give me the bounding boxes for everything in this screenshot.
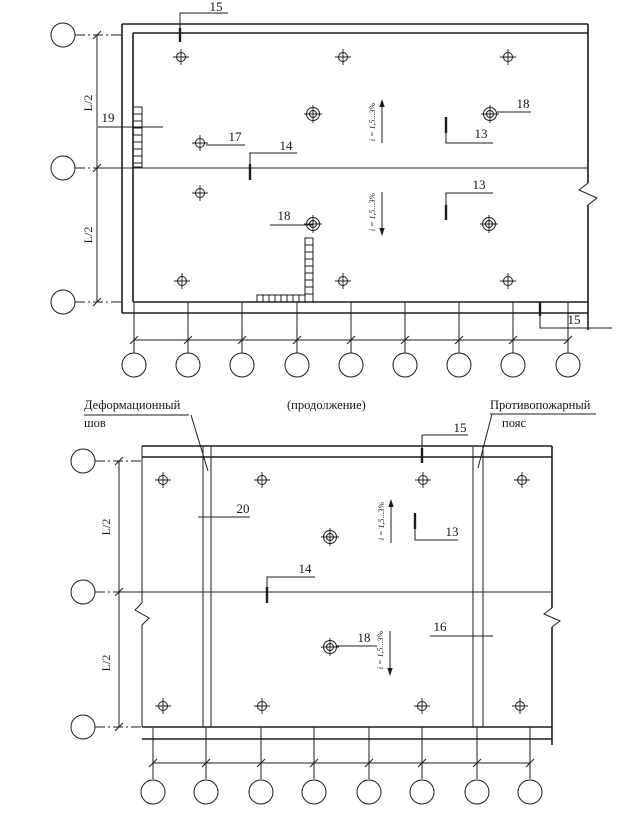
roof-drain-icon [192, 135, 208, 151]
axis-marker-icon [51, 290, 75, 314]
callout-wall-ladder: 19 [94, 111, 122, 125]
roof-drain-icon [500, 49, 516, 65]
callout-ridge-lower: 14 [291, 562, 319, 576]
lower-plan-left-axes [71, 449, 142, 739]
fire-belt-label-line2: пояс [502, 417, 526, 430]
break-mark-icon [544, 608, 560, 627]
slope-arrow-icon [379, 228, 384, 236]
callout-drain-upper: 18 [509, 97, 537, 111]
axis-marker-icon [141, 780, 165, 804]
upper-plan-drains [173, 49, 516, 289]
roof-drain-icon [500, 273, 516, 289]
axis-marker-icon [302, 780, 326, 804]
lower-roof-plan [71, 414, 596, 804]
upper-plan-walls [122, 24, 597, 330]
fire-belt-lines [473, 447, 483, 727]
lower-plan-callout-leaders [84, 414, 596, 646]
roof-drain-icon [173, 49, 189, 65]
lower-plan-walls [135, 446, 560, 745]
axis-marker-icon [556, 353, 580, 377]
gutter-strip-icon [305, 238, 313, 302]
lower-plan-slope-arrows [387, 499, 393, 676]
roof-drain-icon [514, 472, 530, 488]
roof-drain-double-icon [321, 528, 339, 546]
dim-half-span: L/2 [100, 507, 114, 547]
roof-drain-icon [415, 472, 431, 488]
callout-slope-lower: 13 [465, 178, 493, 192]
gutter-strip-icon [257, 295, 305, 302]
dim-half-span: L/2 [100, 643, 114, 683]
roof-drain-icon [174, 273, 190, 289]
roof-drain-double-icon [480, 215, 498, 233]
slope-arrow-icon [379, 99, 384, 107]
axis-marker-icon [285, 353, 309, 377]
roof-drain-icon [512, 698, 528, 714]
axis-marker-icon [194, 780, 218, 804]
roof-plan-drawing: 15 19 17 14 18 13 13 18 15 L/2 L/2 i = 1… [0, 0, 619, 827]
axis-marker-icon [176, 353, 200, 377]
deformation-joint-lines [203, 446, 211, 727]
dim-half-span: L/2 [82, 215, 96, 255]
axis-marker-icon [71, 580, 95, 604]
slope-label: i = 1,5...3% [377, 618, 387, 682]
roof-drain-icon [155, 698, 171, 714]
dim-half-span: L/2 [82, 83, 96, 123]
axis-marker-icon [230, 353, 254, 377]
callout-fire-belt: 16 [426, 620, 454, 634]
callout-funnel: 17 [221, 130, 249, 144]
deformation-joint-label-line1: Деформационный [84, 399, 180, 412]
axis-marker-icon [249, 780, 273, 804]
continuation-label: (продолжение) [287, 399, 366, 412]
wall-ladder-icon [133, 107, 142, 167]
slope-label: i = 1,5...3% [369, 180, 379, 244]
axis-marker-icon [465, 780, 489, 804]
roof-drain-double-icon [304, 105, 322, 123]
axis-marker-icon [501, 353, 525, 377]
roof-drain-icon [192, 185, 208, 201]
roof-drain-icon [335, 273, 351, 289]
callout-deformation-joint: 20 [229, 502, 257, 516]
callout-drain-lower: 18 [270, 209, 298, 223]
callout-parapet-top-upper: 15 [202, 0, 230, 14]
callout-drain: 18 [350, 631, 378, 645]
callout-slope: 13 [438, 525, 466, 539]
upper-roof-plan [51, 13, 612, 377]
slope-label: i = 1,5...3% [369, 90, 379, 154]
axis-marker-icon [71, 715, 95, 739]
axis-marker-icon [410, 780, 434, 804]
slope-arrow-icon [388, 499, 393, 507]
axis-marker-icon [393, 353, 417, 377]
deformation-joint-label-line2: шов [84, 417, 106, 430]
break-mark-icon [579, 183, 597, 205]
axis-marker-icon [518, 780, 542, 804]
drawing-linework [0, 0, 619, 827]
slope-label: i = 1,5...3% [378, 489, 388, 553]
axis-marker-icon [339, 353, 363, 377]
callout-slope-upper: 13 [467, 127, 495, 141]
roof-drain-icon [335, 49, 351, 65]
callout-parapet-top-lower: 15 [446, 421, 474, 435]
roof-drain-double-icon [304, 215, 322, 233]
break-mark-icon [135, 603, 149, 625]
roof-drain-icon [414, 698, 430, 714]
axis-marker-icon [71, 449, 95, 473]
roof-drain-double-icon [321, 638, 339, 656]
callout-parapet-corner: 15 [560, 313, 588, 327]
axis-marker-icon [51, 23, 75, 47]
axis-marker-icon [357, 780, 381, 804]
axis-marker-icon [122, 353, 146, 377]
roof-drain-icon [254, 472, 270, 488]
axis-marker-icon [51, 156, 75, 180]
slope-arrow-icon [387, 668, 392, 676]
callout-ridge-upper: 14 [272, 139, 300, 153]
roof-drain-double-icon [481, 105, 499, 123]
fire-belt-label-line1: Противопожарный [490, 399, 590, 412]
axis-marker-icon [447, 353, 471, 377]
roof-drain-icon [155, 472, 171, 488]
roof-drain-icon [254, 698, 270, 714]
